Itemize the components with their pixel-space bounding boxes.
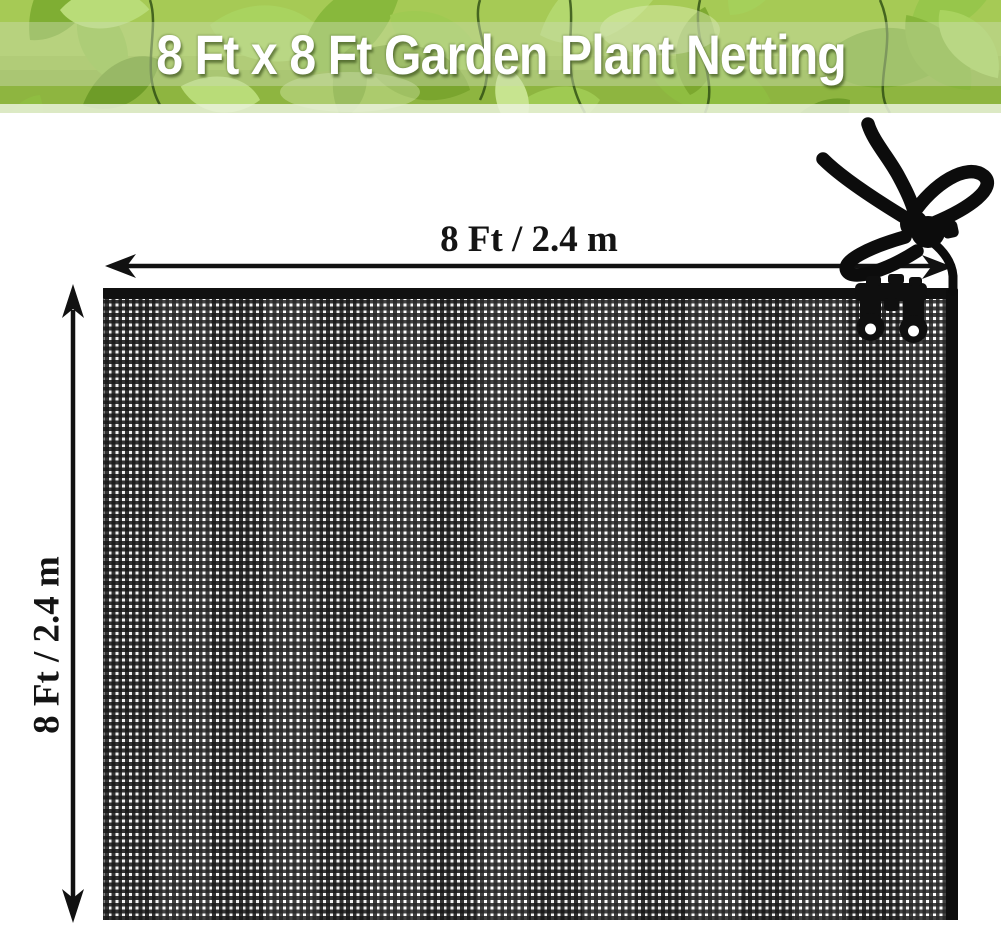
product-image: 8 Ft x 8 Ft Garden Plant Netting 8 Ft / … (0, 0, 1001, 925)
annotation-overlay (0, 0, 1001, 925)
net-clips-icon (855, 274, 928, 343)
width-dimension-arrow (105, 254, 953, 279)
height-dimension-arrow (62, 284, 84, 923)
